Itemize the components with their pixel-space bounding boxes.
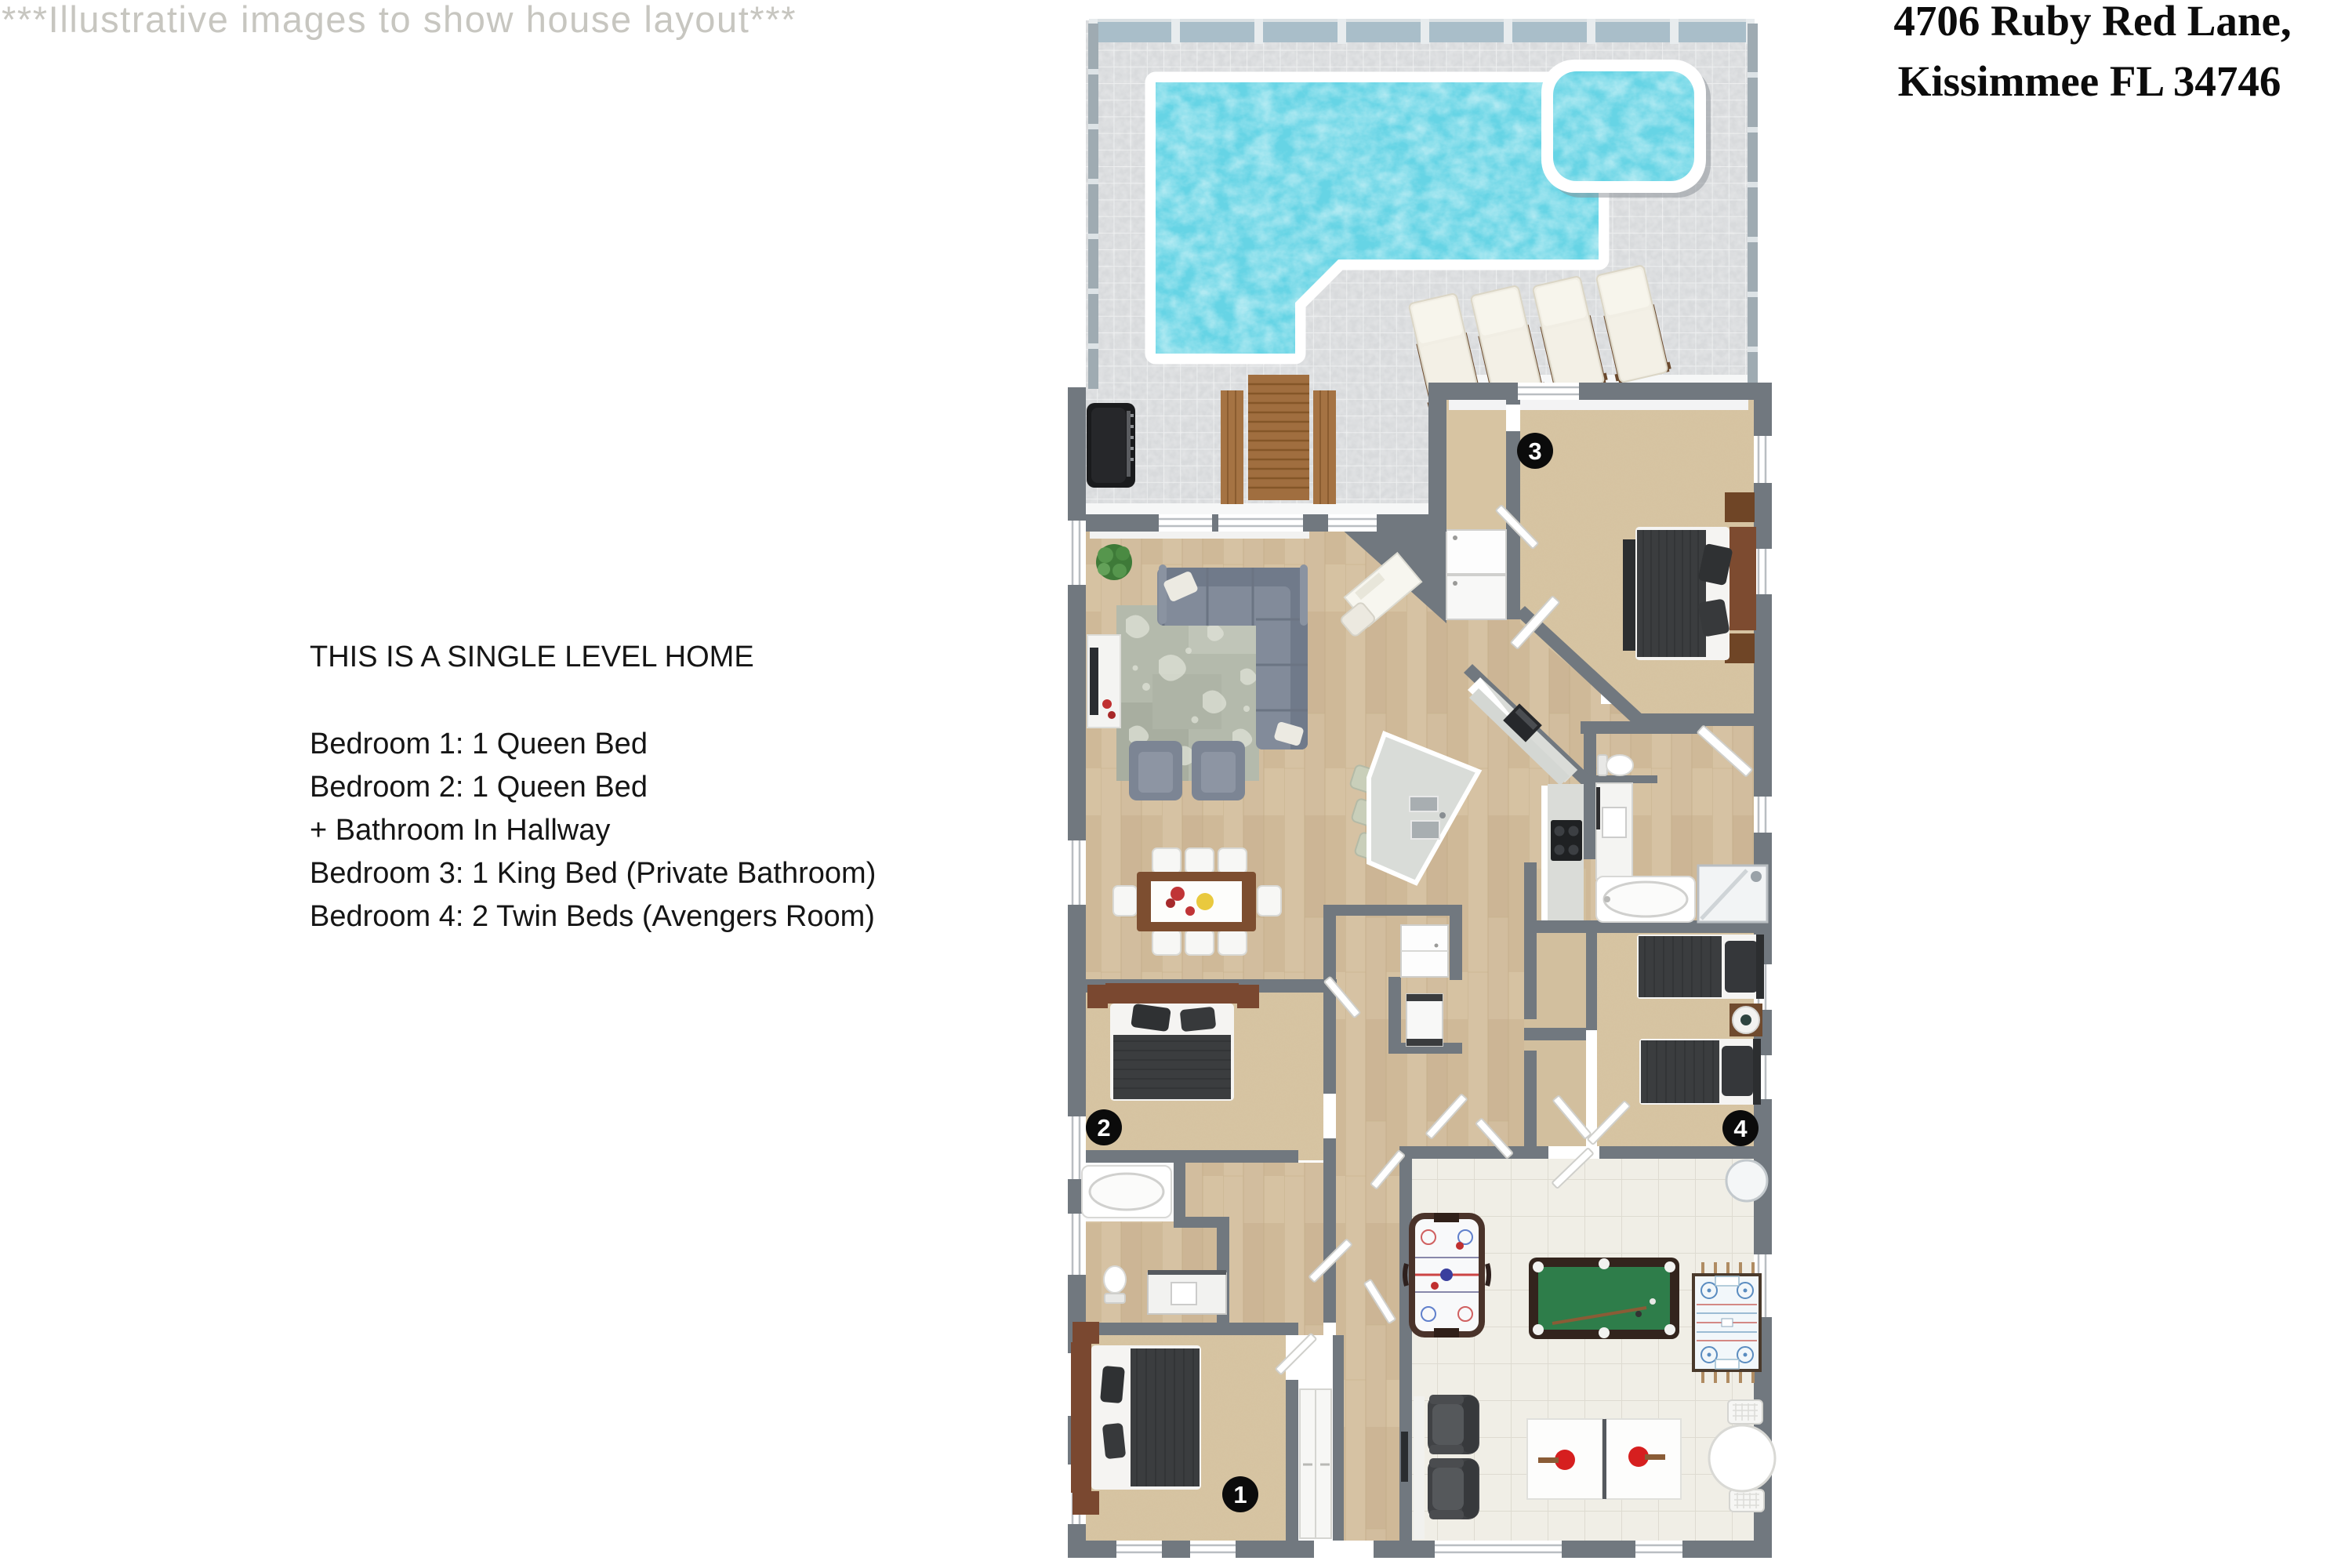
svg-text:+ Bathroom In Hallway: + Bathroom In Hallway	[310, 814, 610, 847]
svg-text:Bedroom 2: 1 Queen Bed: Bedroom 2: 1 Queen Bed	[310, 771, 648, 804]
svg-text:1: 1	[1233, 1481, 1247, 1508]
svg-text:Kissimmee FL 34746: Kissimmee FL 34746	[1898, 57, 2281, 105]
svg-text:2: 2	[1097, 1114, 1110, 1142]
svg-text:4: 4	[1733, 1115, 1748, 1142]
svg-text:Bedroom 4: 2 Twin Beds (Avenge: Bedroom 4: 2 Twin Beds (Avengers Room)	[310, 900, 875, 933]
svg-text:Bedroom 1: 1 Queen Bed: Bedroom 1: 1 Queen Bed	[310, 728, 648, 760]
svg-text:Bedroom 3: 1 King Bed (Private: Bedroom 3: 1 King Bed (Private Bathroom)	[310, 857, 876, 890]
svg-text:THIS IS A SINGLE LEVEL HOME: THIS IS A SINGLE LEVEL HOME	[310, 641, 754, 673]
svg-text:4706 Ruby Red Lane,: 4706 Ruby Red Lane,	[1893, 0, 2291, 45]
svg-text:***Illustrative images to show: ***Illustrative images to show house lay…	[2, 0, 797, 40]
svg-text:3: 3	[1528, 437, 1541, 465]
